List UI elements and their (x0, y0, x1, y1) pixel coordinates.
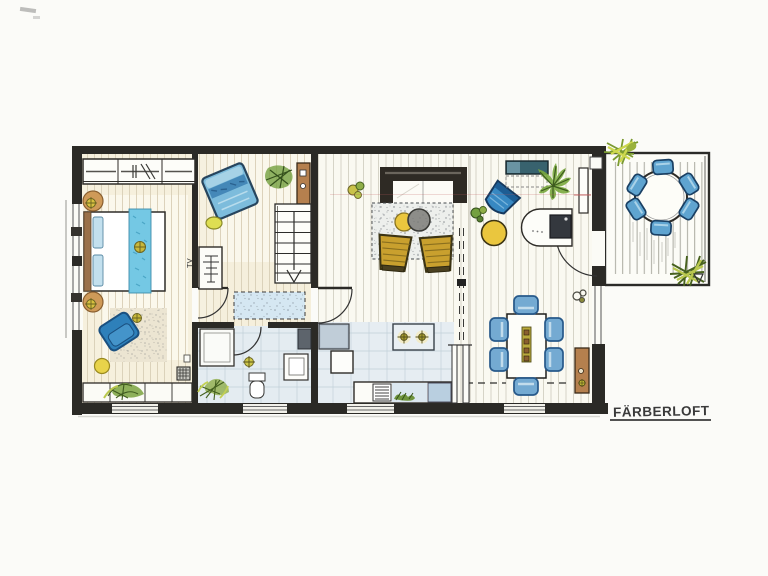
svg-text:FÄRBERLOFT: FÄRBERLOFT (613, 403, 710, 420)
svg-text:TV: TV (185, 258, 194, 268)
